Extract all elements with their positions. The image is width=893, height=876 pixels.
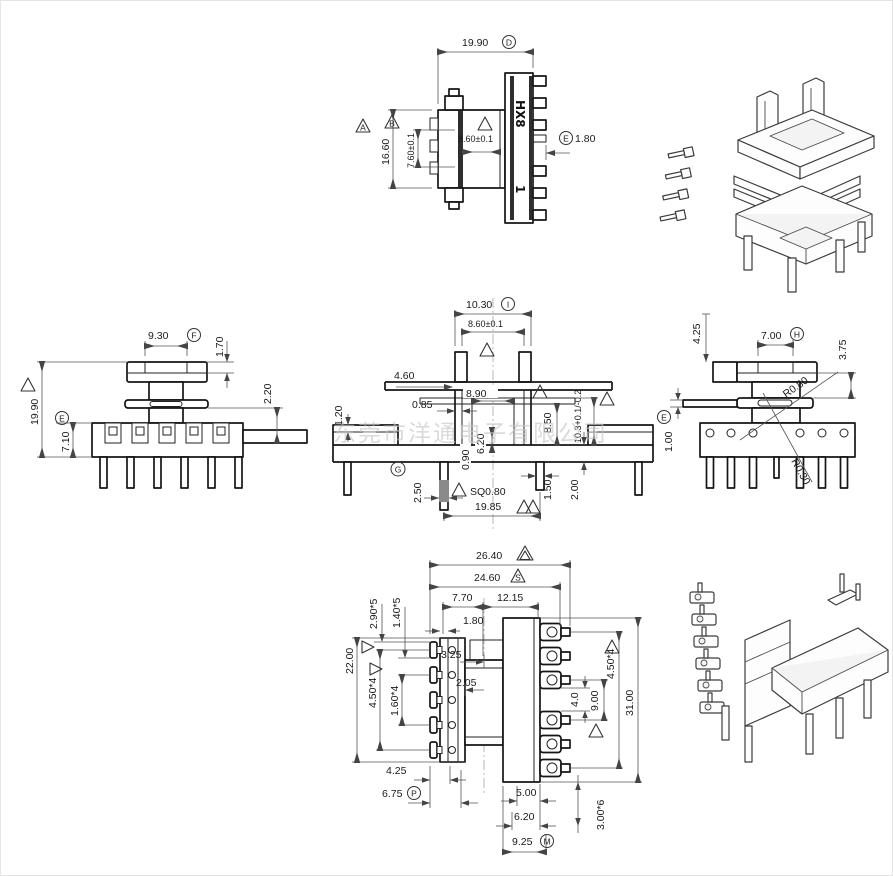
- dim-bottom-3-25: 3.25: [441, 649, 462, 661]
- dim-left-total-height: 19.90: [29, 399, 41, 425]
- iso-view-upper: [647, 78, 874, 292]
- top-view-side-tabs: [430, 118, 438, 174]
- dim-bottom-overall-height: 31.00: [624, 690, 636, 716]
- dim-bottom-1-80: 1.80: [463, 615, 484, 627]
- dim-bottom-5-00: 5.00: [516, 787, 537, 799]
- dim-right-r2: R0.30: [788, 457, 812, 487]
- dim-bottom-overall-width: 26.40: [476, 550, 502, 562]
- dim-bottom-pitch-1-40: 1.40*5: [391, 597, 403, 628]
- bottom-view: 26.40 24.60 S 7.70 12.15 1.80 2.90*5 1.4…: [344, 546, 642, 855]
- tag-g: G: [395, 465, 402, 475]
- tag-e3: E: [661, 413, 667, 423]
- dim-bottom-pitch-3-00: 3.00*6: [595, 799, 607, 830]
- dim-bottom-12-15: 12.15: [497, 592, 523, 604]
- bobbin-drawing-svg: HX8 1 19.90 D 16.60 A 7.60±0.1 B 8.60±0.…: [0, 0, 893, 876]
- watermark: 东莞市洋通电子有限公司: [333, 421, 608, 447]
- flag-a: A: [360, 123, 366, 133]
- tag-m: M: [543, 837, 550, 847]
- top-view-pins: [533, 76, 546, 220]
- iso-view-lower: [690, 574, 888, 762]
- part-marking: HX8: [513, 100, 527, 128]
- bottom-view-terminal-tabs: [540, 624, 570, 777]
- dim-bottom-pitch-2-90: 2.90*5: [368, 598, 380, 629]
- dim-front-2-00: 2.00: [569, 479, 581, 500]
- bottom-ow-flag-triangle-outer: [517, 546, 533, 560]
- iso-upper-pins: [647, 147, 706, 224]
- dim-bottom-9-00: 9.00: [589, 690, 601, 711]
- dim-bottom-6-75: 6.75: [382, 788, 403, 800]
- dim-front-top-width: 10.30: [466, 299, 492, 311]
- highlighted-square-pin: [439, 480, 449, 502]
- dim-right-7-00: 7.00: [761, 330, 782, 342]
- tag-d: D: [506, 38, 512, 48]
- dim-top-pin-step: 1.80: [575, 133, 596, 145]
- flag-b: B: [389, 119, 395, 129]
- front-tol-flag-triangle: [600, 392, 614, 405]
- tag-i: I: [507, 300, 509, 310]
- dim-front-0-85: 0.85: [412, 399, 433, 411]
- dim-top-core-width: 8.60±0.1: [458, 134, 493, 144]
- dim-right-3-75: 3.75: [837, 339, 849, 360]
- dim-bottom-pitch-1-60: 1.60*4: [389, 685, 401, 716]
- bottom-9-00-flag-triangle: [589, 724, 603, 737]
- dim-top-window-width: 7.60±0.1: [406, 133, 416, 168]
- top-view: HX8 1 19.90 D 16.60 A 7.60±0.1 B 8.60±0.…: [356, 36, 596, 224]
- dim-left-flange-thickness: 1.70: [214, 336, 226, 357]
- dim-left-flange-width: 9.30: [148, 330, 169, 342]
- left-view-pins: [100, 457, 242, 488]
- dim-right-4-25: 4.25: [691, 323, 703, 344]
- dim-right-1-00: 1.00: [663, 431, 675, 452]
- iso-lower-tab-column: [690, 583, 724, 713]
- dim-front-sq: SQ0.80: [470, 486, 506, 498]
- right-view-pins: [707, 457, 848, 488]
- dim-bottom-4-25: 4.25: [386, 765, 407, 777]
- dim-bottom-2-05: 2.05: [456, 677, 477, 689]
- dim-front-pin-span: 19.85: [475, 501, 501, 513]
- front-core-flag-triangle: [480, 343, 494, 356]
- right-side-view: 4.25 7.00 H 3.75 R0.80 R0.30 E 1.00: [658, 314, 857, 488]
- dim-front-4-60: 4.60: [394, 370, 415, 382]
- left-view-flag-triangle: [21, 378, 35, 391]
- dim-bottom-pitch-4-50-l: 4.50*4: [367, 677, 379, 708]
- dim-left-ledge: 2.20: [262, 383, 274, 404]
- tag-p: P: [411, 789, 417, 799]
- flag-s: S: [515, 573, 521, 583]
- dim-top-overall-width: 19.90: [462, 37, 488, 49]
- front-8-50-flag-triangle: [533, 385, 547, 398]
- dim-left-base-height: 7.10: [60, 431, 72, 452]
- dim-bottom-body-width: 24.60: [474, 572, 500, 584]
- tag-h: H: [794, 330, 800, 340]
- dim-bottom-7-70: 7.70: [452, 592, 473, 604]
- drawing-sheet: HX8 1 19.90 D 16.60 A 7.60±0.1 B 8.60±0.…: [0, 0, 893, 876]
- left-side-view: 9.30 F 1.70 19.90 E 7.10 2.20: [21, 329, 307, 489]
- dim-bottom-6-20: 6.20: [514, 811, 535, 823]
- dim-bottom-9-25: 9.25: [512, 836, 533, 848]
- dim-top-overall-height: 16.60: [380, 139, 392, 165]
- tag-f: F: [191, 331, 196, 341]
- pin1-marking: 1: [513, 185, 527, 193]
- dim-front-2-50: 2.50: [412, 482, 424, 503]
- dim-front-core-width: 8.60±0.1: [468, 319, 503, 329]
- dim-front-8-90: 8.90: [466, 388, 487, 400]
- dim-bottom-height: 22.00: [344, 648, 356, 674]
- bottom-height-flag-triangle: [362, 641, 374, 653]
- tag-e1: E: [563, 134, 569, 144]
- tag-e2: E: [59, 414, 65, 424]
- front-view: 10.30 I 8.60±0.1 4.60 8.90 0.85 8.50 10.…: [333, 298, 653, 533]
- dim-front-1-50: 1.50: [542, 479, 554, 500]
- sq-flag-triangle: [452, 483, 466, 496]
- dim-bottom-4-0: 4.0: [569, 692, 581, 707]
- dim-front-0-90: 0.90: [460, 449, 472, 470]
